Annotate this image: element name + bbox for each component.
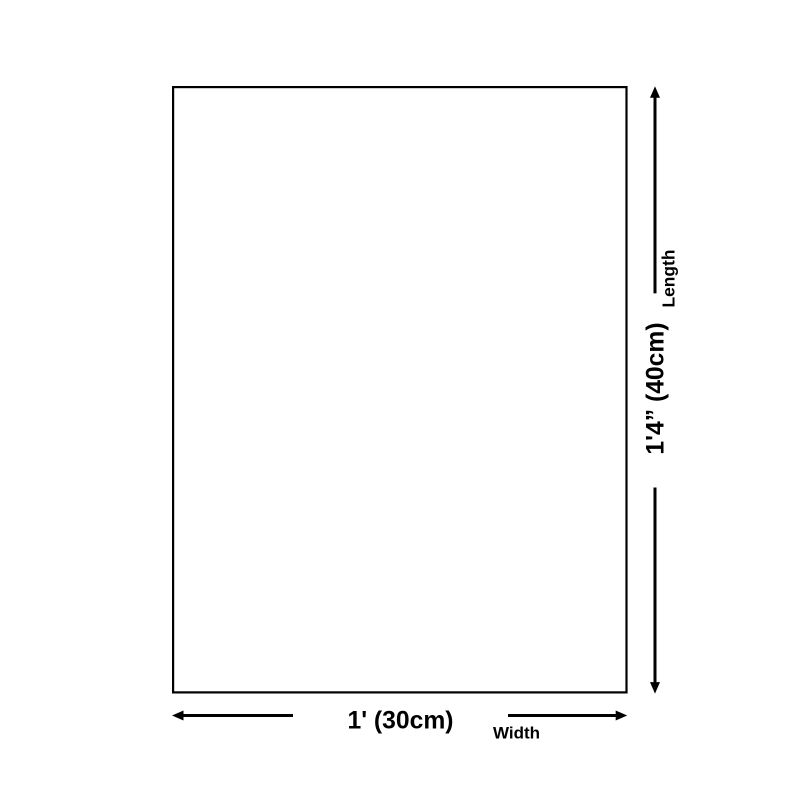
svg-text:Width: Width xyxy=(493,724,540,743)
svg-text:1' (30cm): 1' (30cm) xyxy=(347,708,453,735)
svg-text:Length: Length xyxy=(659,250,679,308)
svg-text:1'4” (40cm): 1'4” (40cm) xyxy=(643,322,670,454)
